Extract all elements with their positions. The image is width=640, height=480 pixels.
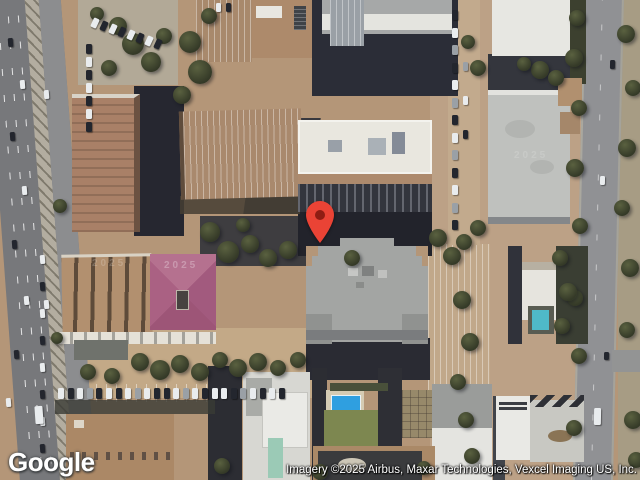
car — [20, 80, 26, 89]
car — [452, 220, 458, 230]
google-logo[interactable]: Google — [8, 447, 95, 478]
car — [24, 296, 30, 305]
car — [40, 363, 46, 372]
car — [610, 60, 615, 69]
car — [99, 20, 109, 32]
car — [452, 98, 458, 108]
car — [153, 38, 163, 50]
car — [126, 29, 136, 41]
car — [108, 23, 118, 35]
car — [90, 17, 100, 29]
car — [144, 35, 154, 47]
car — [452, 115, 458, 125]
car — [40, 309, 46, 318]
car — [279, 388, 285, 399]
car — [135, 388, 141, 399]
car — [192, 388, 198, 399]
car — [125, 388, 131, 399]
car — [452, 28, 458, 38]
car — [86, 57, 92, 67]
map-pin-dot — [315, 210, 325, 220]
car — [86, 109, 92, 119]
car — [604, 352, 609, 360]
car — [173, 388, 179, 399]
car — [463, 130, 468, 139]
car — [10, 132, 16, 141]
car — [77, 388, 83, 399]
car — [58, 388, 64, 399]
imagery-attribution: Imagery ©2025 Airbus, Maxar Technologies… — [286, 464, 637, 476]
car — [14, 350, 20, 359]
car — [463, 62, 468, 71]
car — [86, 70, 92, 80]
map-canvas[interactable]: 2025 2025 2025 Google Imagery ©2025 — [0, 0, 640, 480]
car — [452, 168, 458, 178]
car — [600, 176, 605, 185]
car — [34, 406, 43, 425]
car — [269, 388, 275, 399]
map-pin-body — [306, 201, 334, 243]
car — [231, 388, 237, 399]
car — [144, 388, 150, 399]
car — [86, 122, 92, 132]
car — [12, 240, 18, 249]
car — [40, 255, 46, 264]
car — [68, 388, 74, 399]
car — [86, 44, 92, 54]
car — [116, 388, 122, 399]
car — [40, 282, 46, 291]
car — [212, 388, 218, 399]
car — [164, 388, 170, 399]
car — [22, 186, 28, 195]
car — [463, 96, 468, 105]
car — [86, 83, 92, 93]
car — [202, 388, 208, 399]
car — [87, 388, 93, 399]
car — [44, 300, 50, 309]
car — [452, 185, 458, 195]
car — [40, 390, 46, 399]
car — [452, 45, 458, 55]
car — [106, 388, 112, 399]
map-pin-icon[interactable] — [306, 201, 334, 243]
car — [452, 80, 458, 90]
car — [216, 3, 221, 12]
car — [86, 96, 92, 106]
car — [44, 90, 50, 99]
car — [240, 388, 246, 399]
car — [452, 150, 458, 160]
car — [8, 38, 14, 47]
car — [154, 388, 160, 399]
car — [183, 388, 189, 399]
car — [226, 3, 231, 12]
car — [452, 10, 458, 20]
car — [452, 133, 458, 143]
car — [452, 203, 458, 213]
car — [6, 398, 12, 407]
car — [135, 32, 145, 44]
car — [117, 26, 127, 38]
car — [260, 388, 266, 399]
car — [250, 388, 256, 399]
car — [221, 388, 227, 399]
car — [452, 63, 458, 73]
car — [96, 388, 102, 399]
car — [594, 408, 601, 425]
car — [40, 336, 46, 345]
